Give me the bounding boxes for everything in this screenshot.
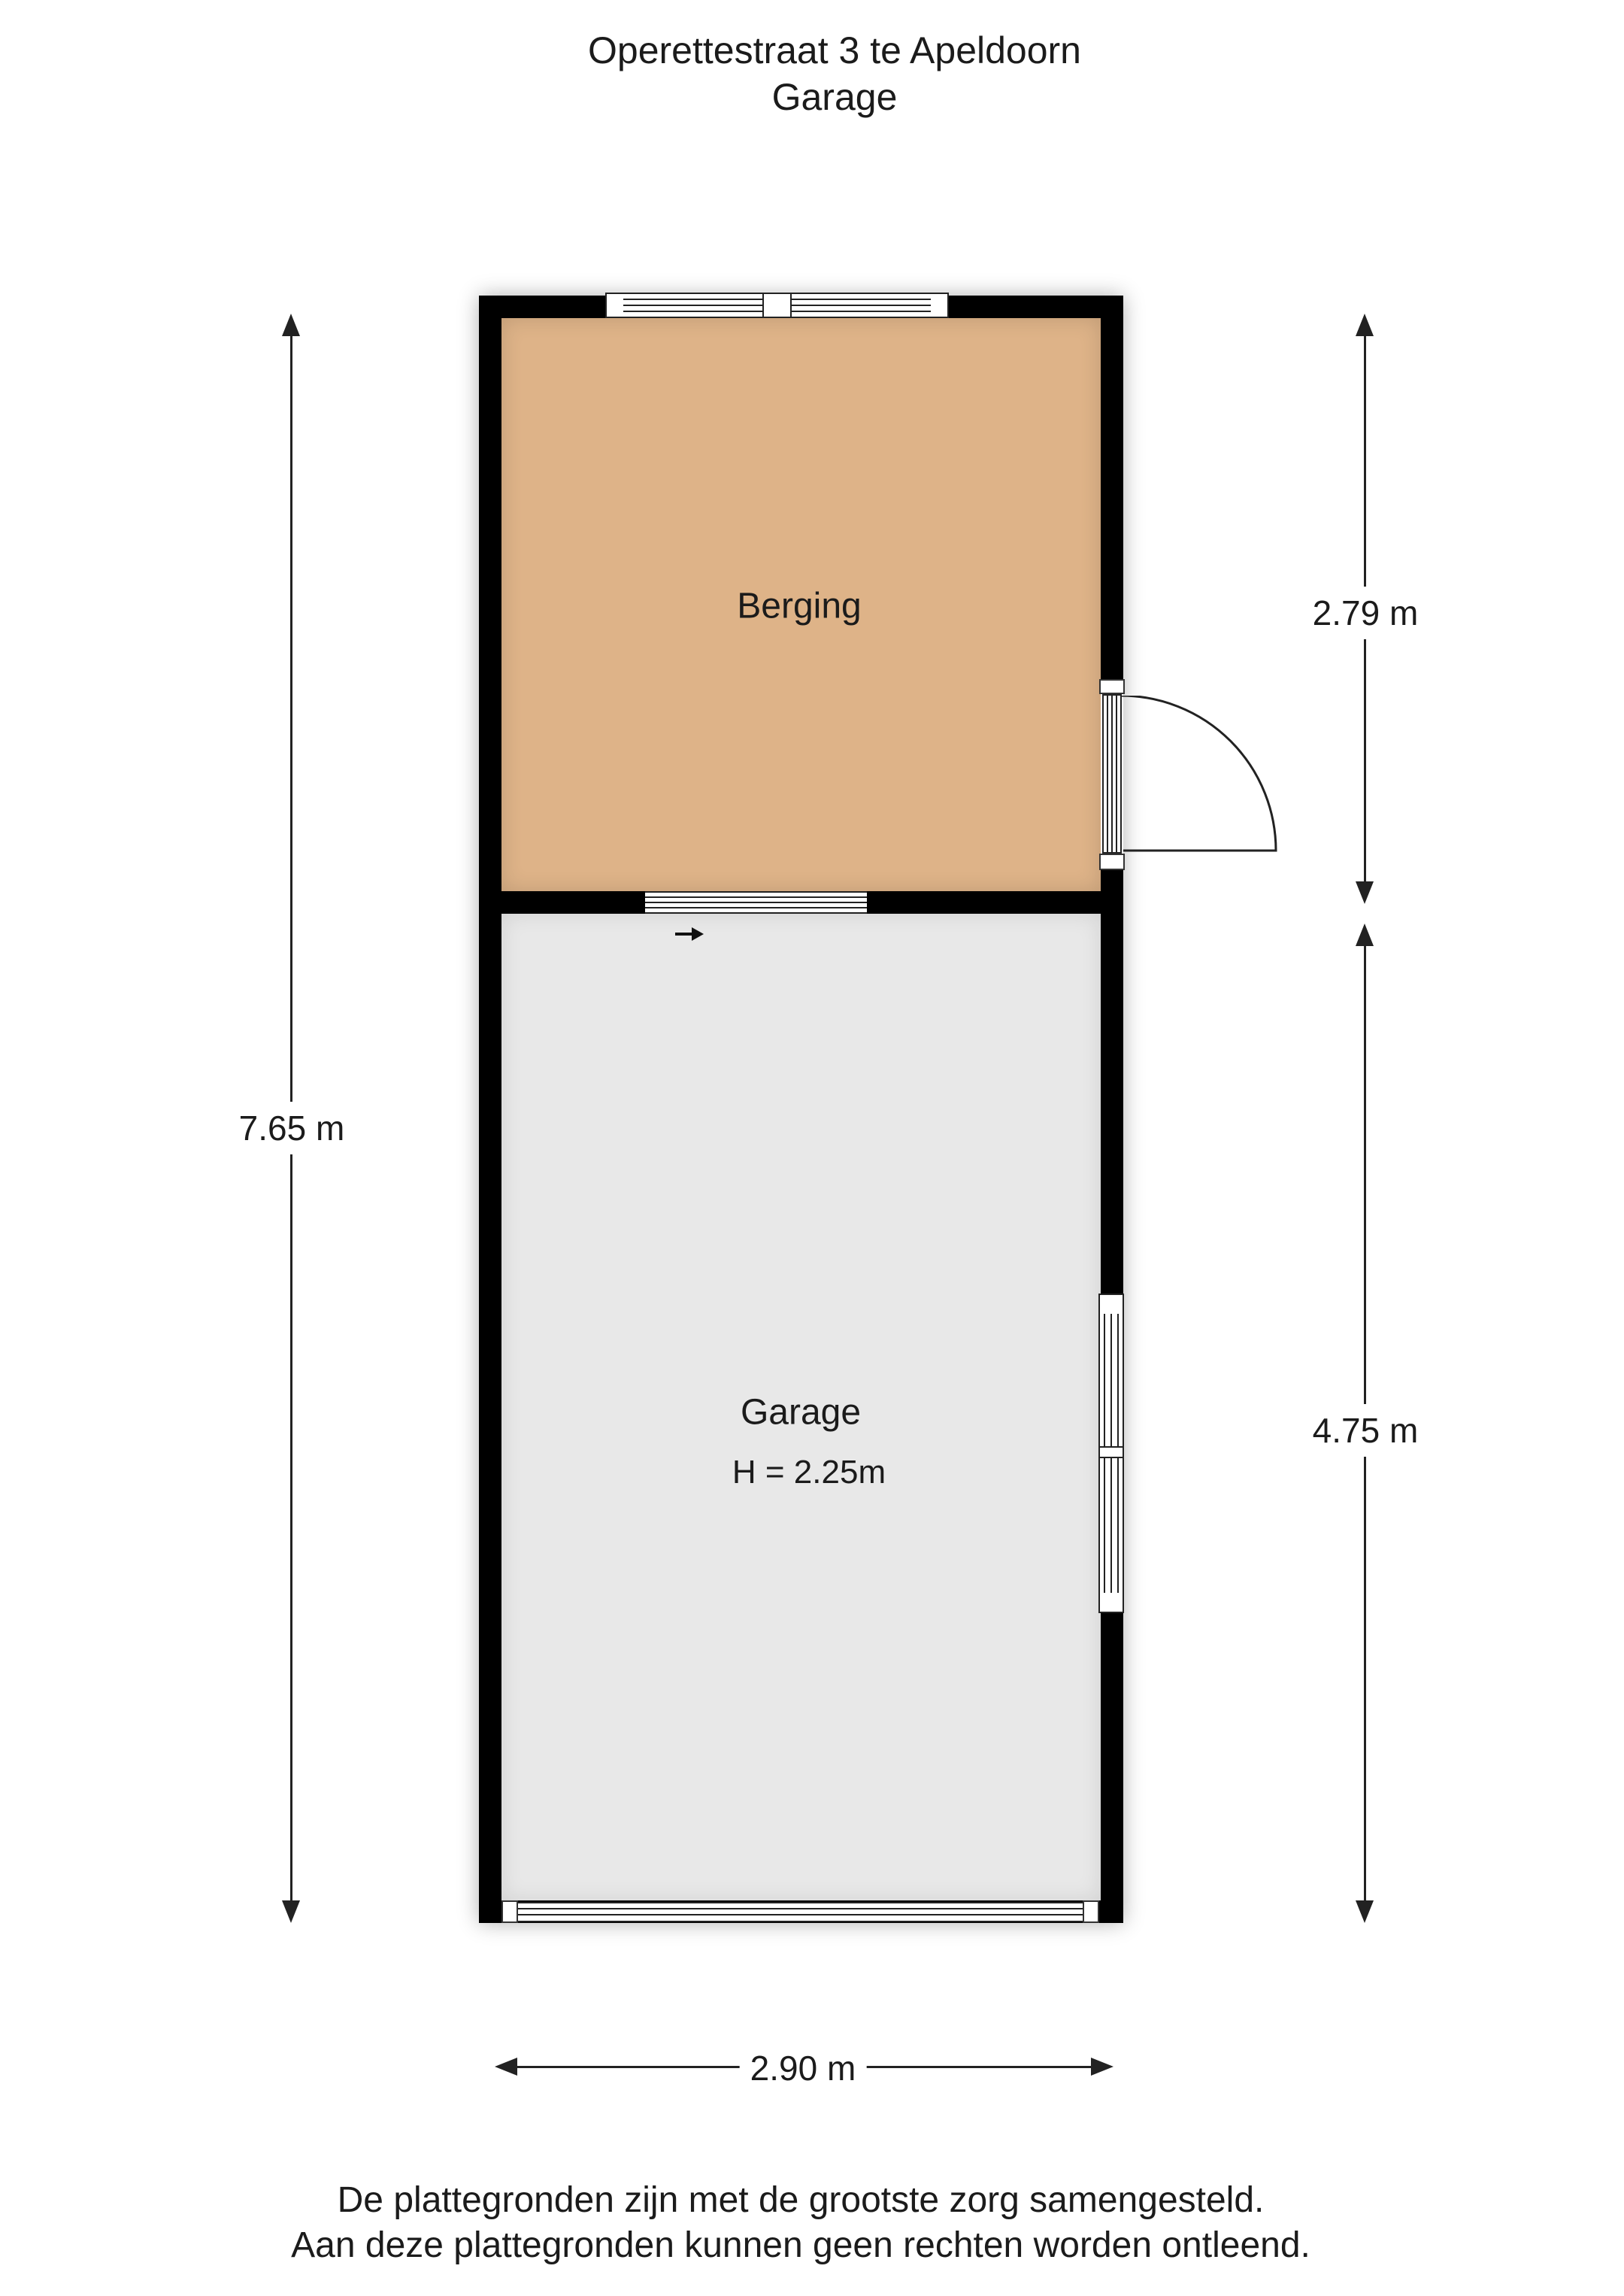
garage-height-note: H = 2.25m	[732, 1454, 886, 1491]
door-jamb-top	[1099, 679, 1125, 694]
dim-290-arrow-right	[1091, 2058, 1113, 2076]
inner-wall-window	[645, 891, 867, 914]
page-title: Operettestraat 3 te Apeldoorn Garage	[588, 27, 1081, 120]
garage-overhead-door	[505, 1902, 1097, 1922]
window-pane	[623, 294, 762, 317]
disclaimer-line-1: De plattegronden zijn met de grootste zo…	[338, 2179, 1265, 2221]
entrance-direction-arrow	[675, 933, 693, 936]
dim-765-arrow-bottom	[282, 1900, 300, 1923]
disclaimer-line-2: Aan deze plattegronden kunnen geen recht…	[291, 2225, 1310, 2266]
dim-475-arrow-bottom	[1356, 1900, 1374, 1923]
floorplan-page: Operettestraat 3 te Apeldoorn Garage Ber…	[0, 0, 1624, 2296]
garage-door-lines	[505, 1903, 1097, 1921]
dim-garage-height-label: 4.75 m	[1302, 1404, 1429, 1457]
berging-top-window	[605, 293, 949, 318]
door-swing-arc	[1120, 696, 1279, 855]
window-mullion	[762, 294, 792, 317]
door-jamb-bottom	[1099, 854, 1125, 870]
window-pane	[792, 294, 931, 317]
dim-279-arrow-bottom	[1356, 881, 1374, 904]
entrance-direction-arrow-head	[692, 927, 704, 941]
title-subtitle: Garage	[588, 74, 1081, 120]
window-glazing-lines	[645, 893, 867, 912]
garage-side-window	[1098, 1294, 1124, 1613]
dim-berging-height-label: 2.79 m	[1302, 587, 1429, 639]
garage-label: Garage	[741, 1392, 861, 1433]
dim-overall-height-label: 7.65 m	[229, 1102, 356, 1154]
berging-label: Berging	[737, 586, 861, 627]
title-address: Operettestraat 3 te Apeldoorn	[588, 27, 1081, 74]
garage-door-jamb-right	[1083, 1900, 1099, 1923]
garage-door-jamb-left	[501, 1900, 518, 1923]
window-mullion	[1100, 1446, 1123, 1458]
dim-overall-width-label: 2.90 m	[740, 2042, 867, 2094]
